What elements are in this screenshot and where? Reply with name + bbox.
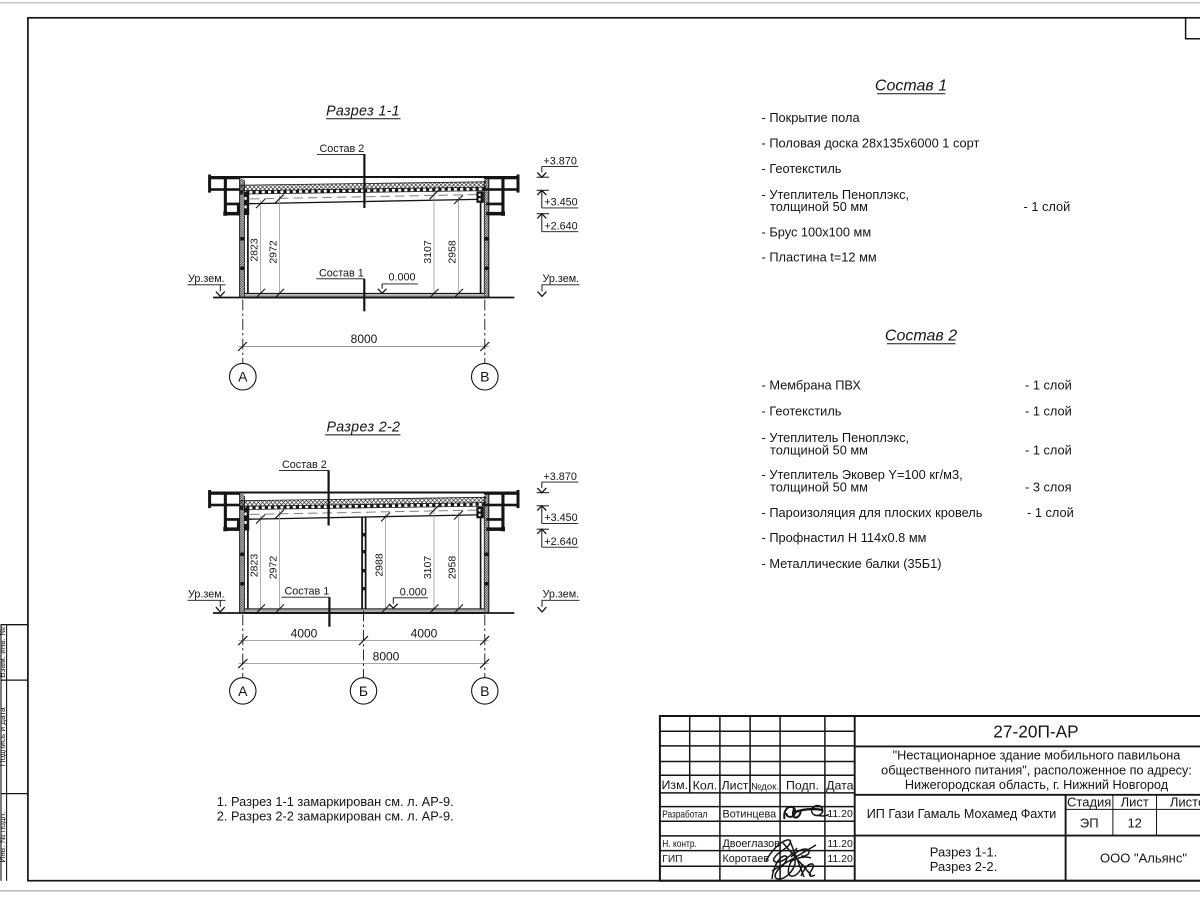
svg-text:12: 12	[1127, 816, 1141, 831]
svg-text:Ур.зем.: Ур.зем.	[543, 273, 580, 285]
svg-text:- Половая доска 28х135х6000 1: - Половая доска 28х135х6000 1 сорт	[762, 136, 980, 151]
svg-text:- 1 слой: - 1 слой	[1027, 505, 1074, 520]
svg-text:2972: 2972	[267, 240, 279, 264]
svg-text:Коротаев: Коротаев	[723, 853, 770, 865]
svg-text:Ур.зем.: Ур.зем.	[188, 273, 225, 285]
svg-text:- Металлические балки (35Б1): - Металлические балки (35Б1)	[762, 556, 942, 571]
svg-text:Стадия: Стадия	[1067, 795, 1111, 810]
svg-text:2823: 2823	[248, 238, 260, 262]
svg-text:Дата: Дата	[826, 778, 854, 792]
svg-text:Подпись и дата: Подпись и дата	[0, 707, 7, 766]
svg-text:- 3 слоя: - 3 слоя	[1025, 480, 1072, 495]
svg-text:Разрез 2-2.: Разрез 2-2.	[930, 859, 997, 874]
svg-text:2. Разрез 2-2 замаркирован см.: 2. Разрез 2-2 замаркирован см. л. АР-9.	[217, 808, 454, 823]
svg-text:- 1 слой: - 1 слой	[1025, 404, 1072, 419]
svg-text:Разрез 1-1: Разрез 1-1	[326, 104, 400, 120]
svg-text:Вотинцева: Вотинцева	[723, 808, 777, 820]
svg-text:Состав 2: Состав 2	[320, 143, 365, 155]
svg-text:8000: 8000	[351, 332, 378, 346]
svg-text:- Мембрана ПВХ: - Мембрана ПВХ	[762, 378, 862, 393]
svg-text:Нижегородская область, г. Нижн: Нижегородская область, г. Нижний Новгоро…	[905, 778, 1169, 792]
svg-text:В: В	[480, 369, 489, 385]
svg-text:Состав 1: Состав 1	[285, 586, 330, 598]
svg-text:толщиной 50 мм: толщиной 50 мм	[770, 480, 868, 495]
svg-text:Н. контр.: Н. контр.	[662, 839, 697, 850]
svg-text:ЭП: ЭП	[1080, 816, 1099, 831]
svg-text:А: А	[238, 683, 248, 699]
svg-text:27-20П-АР: 27-20П-АР	[993, 722, 1078, 742]
svg-text:Листов: Листов	[1170, 795, 1200, 810]
svg-text:0.000: 0.000	[400, 586, 427, 598]
svg-text:1. Разрез 1-1 замаркирован см.: 1. Разрез 1-1 замаркирован см. л. АР-9.	[217, 794, 454, 809]
svg-text:ООО "Альянс": ООО "Альянс"	[1100, 851, 1187, 866]
svg-text:- Геотекстиль: - Геотекстиль	[762, 161, 842, 176]
svg-text:"Нестационарное здание мобильн: "Нестационарное здание мобильного павиль…	[893, 748, 1182, 762]
svg-text:- Пароизоляция для плоских кро: - Пароизоляция для плоских кровель	[762, 505, 983, 520]
svg-text:Состав 2: Состав 2	[282, 459, 327, 471]
svg-text:11.20: 11.20	[827, 853, 853, 865]
svg-text:- Профнастил Н 114х0.8 мм: - Профнастил Н 114х0.8 мм	[762, 530, 927, 545]
svg-text:- Брус 100х100 мм: - Брус 100х100 мм	[762, 224, 872, 239]
svg-text:Разработал: Разработал	[662, 809, 707, 821]
svg-text:2958: 2958	[446, 240, 458, 264]
svg-text:11.20: 11.20	[827, 808, 853, 820]
svg-text:Разрез 1-1.: Разрез 1-1.	[930, 845, 997, 860]
svg-text:Инв. № подл.: Инв. № подл.	[0, 812, 7, 863]
svg-text:Взам. инв. №: Взам. инв. №	[0, 627, 7, 678]
svg-text:+3.450: +3.450	[544, 197, 577, 209]
svg-text:- 1 слой: - 1 слой	[1025, 378, 1072, 393]
svg-text:3107: 3107	[422, 240, 434, 264]
svg-text:8000: 8000	[373, 650, 400, 664]
svg-text:Изм.: Изм.	[662, 778, 689, 792]
svg-text:2988: 2988	[373, 553, 385, 577]
svg-text:Состав 1: Состав 1	[875, 78, 947, 95]
svg-text:Состав 2: Состав 2	[885, 328, 957, 345]
svg-text:Б: Б	[359, 683, 368, 699]
svg-text:А: А	[238, 369, 248, 385]
svg-text:№док.: №док.	[751, 781, 779, 792]
svg-text:ГИП: ГИП	[662, 854, 682, 865]
svg-text:ИП Гази Гамаль Мохамед Фахти: ИП Гази Гамаль Мохамед Фахти	[867, 807, 1057, 821]
svg-text:- Геотекстиль: - Геотекстиль	[762, 404, 842, 419]
svg-text:- Пластина t=12 мм: - Пластина t=12 мм	[762, 250, 877, 265]
svg-text:Лист: Лист	[722, 778, 749, 792]
svg-text:толщиной 50 мм: толщиной 50 мм	[770, 443, 868, 458]
svg-text:В: В	[480, 683, 489, 699]
svg-text:Подп.: Подп.	[786, 778, 819, 792]
svg-text:толщиной 50 мм: толщиной 50 мм	[770, 199, 868, 214]
svg-text:- 1 слой: - 1 слой	[1024, 199, 1071, 214]
svg-text:- 1 слой: - 1 слой	[1025, 443, 1072, 458]
svg-text:Состав 1: Состав 1	[319, 267, 364, 279]
svg-text:4000: 4000	[291, 627, 318, 641]
svg-text:4000: 4000	[411, 627, 438, 641]
svg-text:+2.640: +2.640	[544, 220, 577, 232]
svg-text:11.20: 11.20	[827, 838, 853, 850]
svg-text:Лист: Лист	[1121, 795, 1149, 810]
svg-text:- Покрытие пола: - Покрытие пола	[762, 110, 861, 125]
svg-text:общественного питания", распол: общественного питания", расположенное по…	[881, 763, 1192, 777]
svg-text:+3.870: +3.870	[544, 155, 577, 167]
svg-text:Разрез 2-2: Разрез 2-2	[326, 420, 400, 436]
svg-text:Двоеглазов: Двоеглазов	[723, 838, 781, 850]
svg-text:0.000: 0.000	[389, 272, 416, 284]
svg-text:Кол.: Кол.	[693, 778, 718, 792]
